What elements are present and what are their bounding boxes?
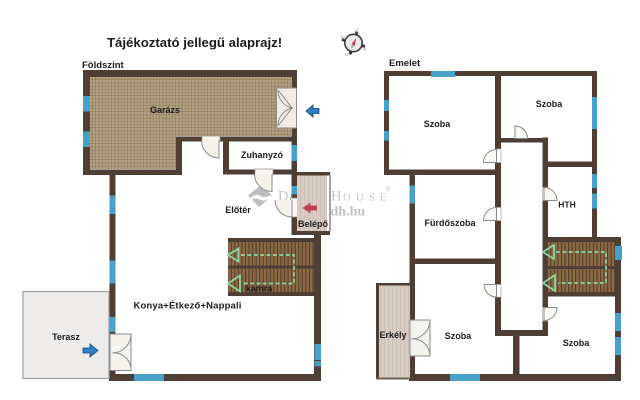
svg-text:K: K bbox=[364, 47, 367, 52]
svg-text:É: É bbox=[356, 28, 359, 34]
svg-text:Ny: Ny bbox=[341, 35, 347, 40]
svg-text:kamra: kamra bbox=[246, 284, 274, 294]
svg-text:Szoba: Szoba bbox=[536, 99, 563, 109]
svg-text:H: H bbox=[331, 189, 342, 205]
svg-text:Garázs: Garázs bbox=[150, 105, 180, 115]
svg-text:Szoba: Szoba bbox=[563, 338, 590, 348]
svg-text:Zuhanyzó: Zuhanyzó bbox=[241, 150, 284, 160]
svg-text:Tájékoztató jellegű alaprajz!: Tájékoztató jellegű alaprajz! bbox=[107, 35, 282, 50]
svg-text:Földszint: Földszint bbox=[82, 60, 125, 71]
svg-text:Emelet: Emelet bbox=[389, 58, 421, 69]
svg-text:Belépő: Belépő bbox=[298, 219, 329, 229]
svg-text:Előtér: Előtér bbox=[225, 205, 251, 215]
svg-text:Szoba: Szoba bbox=[424, 119, 451, 129]
svg-text:Terasz: Terasz bbox=[52, 332, 80, 342]
svg-text:Fürdőszoba: Fürdőszoba bbox=[425, 218, 477, 228]
svg-text:Erkély: Erkély bbox=[379, 330, 406, 340]
svg-text:dh.hu: dh.hu bbox=[331, 205, 366, 220]
svg-text:®: ® bbox=[385, 186, 391, 194]
svg-text:Konya+Étkező+Nappali: Konya+Étkező+Nappali bbox=[133, 301, 241, 312]
svg-text:D: D bbox=[345, 52, 349, 57]
svg-text:HTH: HTH bbox=[558, 200, 575, 210]
svg-text:Szoba: Szoba bbox=[445, 331, 472, 341]
